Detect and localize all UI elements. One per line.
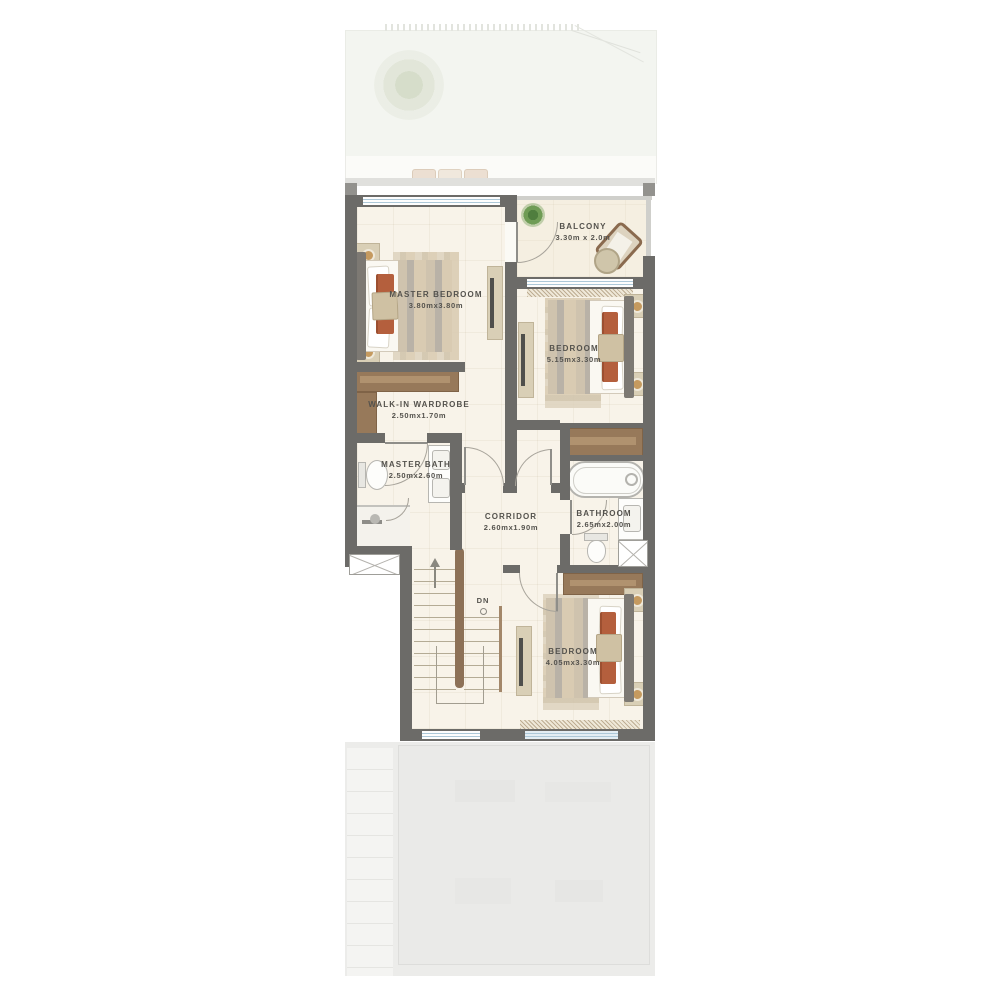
label-bedroom3: BEDROOM 4.05mx3.30m (503, 647, 643, 668)
room-name: BATHROOM (534, 509, 674, 519)
bedroom2-door-leaf (550, 449, 552, 485)
faucet-icon (625, 473, 638, 486)
label-master-bath: MASTER BATH 2.50mx2.60m (346, 460, 486, 481)
bathtub-icon (567, 461, 645, 498)
sink-basin-master-2 (432, 478, 450, 498)
label-balcony: BALCONY 3.30m x 2.0m (513, 222, 653, 243)
window-bedroom2 (527, 279, 633, 287)
wall-right (643, 256, 655, 741)
room-dims: 4.05mx3.30m (503, 658, 643, 668)
lower-terrace-walkway (347, 748, 393, 976)
shower-head-icon (370, 514, 380, 524)
exterior-void (345, 554, 400, 730)
lower-terrace-patch-2 (545, 782, 611, 802)
ghost-wall-line (345, 178, 655, 186)
floor-plan-canvas: DN MASTER BEDROOM 3.80mx3.80m BALCONY 3.… (0, 0, 1000, 1000)
room-name: BEDROOM (504, 344, 644, 354)
room-name: MASTER BEDROOM (366, 290, 506, 300)
window-stairwell (422, 731, 480, 739)
stairs-dn-label: DN (470, 596, 496, 605)
room-name: WALK-IN WARDROBE (349, 400, 489, 410)
balcony-rail-top (512, 196, 652, 200)
lower-terrace-outline (398, 745, 650, 965)
lower-terrace-patch-3 (455, 878, 511, 904)
stair-rail-center (455, 548, 464, 688)
wall-corridor-top-a (450, 483, 465, 493)
room-dims: 2.50mx1.70m (349, 411, 489, 421)
room-dims: 3.80mx3.80m (366, 301, 506, 311)
label-walk-in-wardrobe: WALK-IN WARDROBE 2.50mx1.70m (349, 400, 489, 421)
room-name: BALCONY (513, 222, 653, 232)
wall-central (505, 262, 517, 483)
room-name: MASTER BATH (346, 460, 486, 470)
wall-master-bottom (345, 362, 465, 372)
wall-shaft-top (345, 546, 412, 554)
window-bedroom3 (525, 731, 618, 739)
terrace-hatch-strip (385, 24, 580, 31)
radiator-hatch-bedroom2 (527, 289, 633, 297)
wall-corridor-bottom-a (503, 565, 520, 573)
label-master-bedroom: MASTER BEDROOM 3.80mx3.80m (366, 290, 506, 311)
tree-icon (374, 50, 444, 120)
label-bathroom: BATHROOM 2.65mx2.00m (534, 509, 674, 530)
closet-shelf-2 (570, 580, 636, 586)
lower-terrace-patch-4 (555, 880, 603, 902)
wardrobe-rail (360, 376, 449, 383)
wall-wiw-bath-a (345, 433, 385, 443)
bedroom2-closet (563, 428, 643, 456)
room-dims: 2.50mx2.60m (346, 471, 486, 481)
room-dims: 2.65mx2.00m (534, 520, 674, 530)
wall-bedroom2-bottom (517, 420, 560, 430)
wall-bathroom-west-upper (560, 428, 570, 500)
stair-stringer-right (499, 606, 502, 692)
window-master-bedroom (363, 197, 500, 205)
wall-closet2-top (560, 423, 643, 428)
label-bedroom2: BEDROOM 5.15mx3.30m (504, 344, 644, 365)
wall-stub-right (643, 183, 655, 196)
stair-up-arrow-head (430, 558, 440, 567)
stair-up-arrow-shaft (434, 566, 436, 588)
wall-left (345, 195, 357, 567)
master-bath-door-leaf (385, 442, 427, 444)
lower-terrace-patch (455, 780, 515, 802)
wall-central-upper (505, 195, 517, 222)
stairs-dn-marker (480, 608, 487, 615)
shaft-x-bathroom (618, 540, 648, 567)
room-dims: 5.15mx3.30m (504, 355, 644, 365)
room-dims: 3.30m x 2.0m (513, 233, 653, 243)
wall-stair-west (400, 554, 412, 741)
closet-shelf (570, 437, 636, 445)
master-bed-headboard (356, 252, 366, 360)
bedroom3-door-leaf (556, 573, 558, 611)
side-table-icon (594, 248, 620, 274)
shaft-x-left (349, 554, 400, 575)
room-name: BEDROOM (503, 647, 643, 657)
radiator-hatch-bedroom3 (520, 720, 640, 729)
toilet-icon-bath (587, 540, 606, 563)
wall-closet2-tub (560, 455, 643, 461)
